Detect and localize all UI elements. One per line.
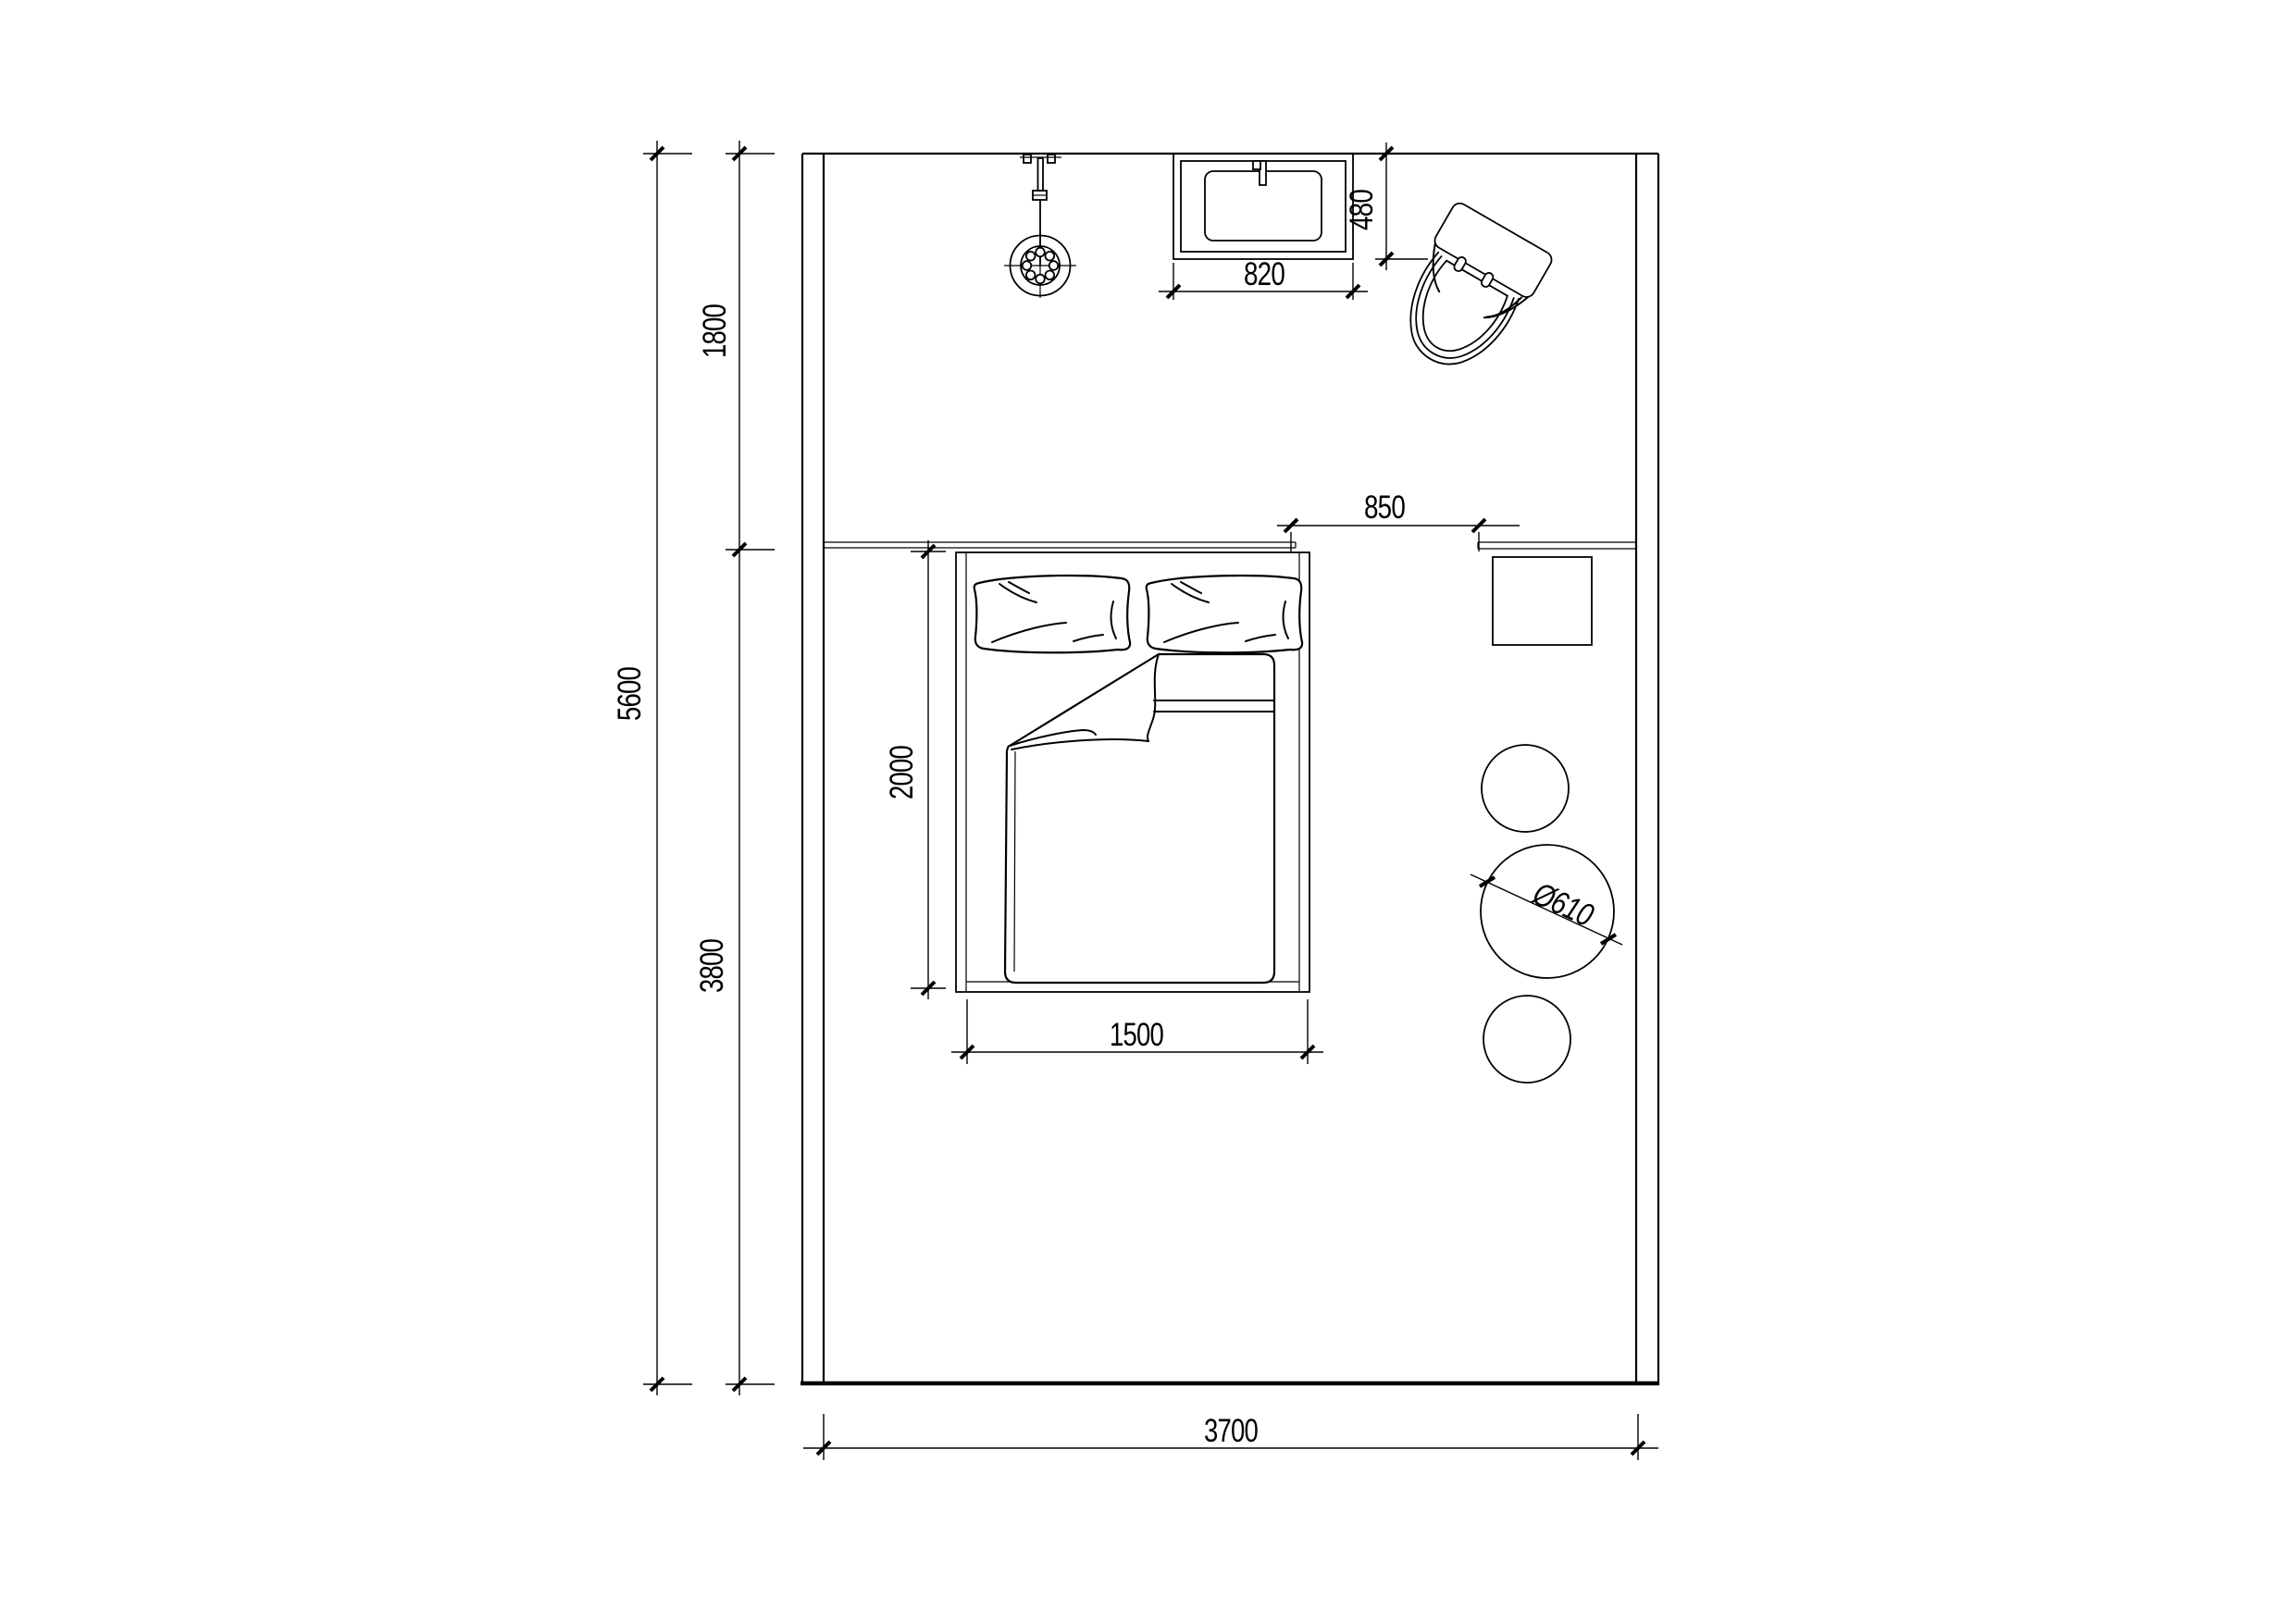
shelf-right	[1478, 542, 1636, 549]
dim-label-2000: 2000	[884, 746, 920, 799]
dim-room-width: 3700	[803, 1413, 1658, 1460]
toilet-icon	[1382, 200, 1555, 387]
toilet-tank	[1432, 200, 1555, 300]
dim-bed-length: 2000	[884, 540, 946, 999]
wall-left	[802, 154, 824, 1383]
toilet-hinge-left	[1453, 255, 1468, 272]
pillow-right	[1147, 576, 1302, 652]
dim-label-3700: 3700	[1204, 1413, 1258, 1449]
floor-plan-svg: 5600 1800 3800 3700 2000 1500	[0, 0, 2296, 1623]
sink-faucet-base	[1253, 161, 1260, 169]
bed	[956, 552, 1309, 992]
dim-label-5600: 5600	[612, 667, 648, 721]
side-table-square	[1493, 557, 1592, 645]
sink-icon	[1173, 154, 1353, 259]
dim-label-3800: 3800	[694, 939, 730, 993]
dim-table-diameter: Ø610	[1471, 874, 1622, 945]
dim-label-850: 850	[1364, 489, 1405, 526]
dim-label-820: 820	[1244, 256, 1285, 292]
dim-label-480: 480	[1344, 190, 1380, 230]
shower-icon	[1004, 155, 1076, 298]
dim-label-1500: 1500	[1110, 1017, 1163, 1053]
duvet	[1005, 654, 1274, 983]
dim-label-610: Ø610	[1527, 875, 1599, 935]
dim-basin-depth: 480	[1344, 142, 1428, 270]
pillow-left	[974, 576, 1130, 652]
floor-plan-canvas: 5600 1800 3800 3700 2000 1500	[0, 0, 2296, 1623]
shower-arm	[1038, 158, 1044, 191]
duvet-body	[1005, 654, 1274, 983]
dim-total-height: 5600	[612, 141, 692, 1395]
wall-right	[1636, 154, 1658, 1383]
stool-circle-top	[1482, 745, 1569, 832]
shower-mount-tab-left	[1024, 155, 1031, 163]
toilet-hinge-right	[1480, 271, 1495, 288]
dim-label-1800: 1800	[697, 304, 733, 358]
dim-zones: 1800 3800	[694, 141, 775, 1395]
shelf-left	[824, 542, 1296, 548]
dim-basin-width: 820	[1159, 256, 1368, 300]
dim-bed-width: 1500	[951, 999, 1323, 1064]
stool-circle-bottom	[1483, 996, 1570, 1083]
shower-mount-tab-right	[1048, 155, 1055, 163]
